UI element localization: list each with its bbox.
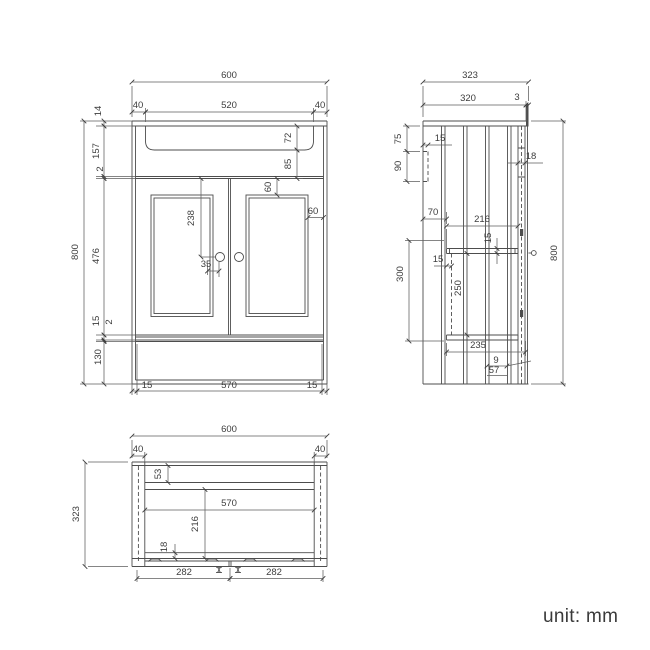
dim-front-top-edge: 14 <box>93 106 104 117</box>
side-view-dimensions: 323 320 3 18 75 90 15 70 216 15 15 300 2… <box>393 70 566 384</box>
dim-front-apron-clearance: 85 <box>283 159 294 170</box>
dim-front-panel-margin-side: 60 <box>308 206 319 217</box>
dim-front-door-gap-bottom: 2 <box>104 319 115 324</box>
dim-plan-overall-depth: 323 <box>71 506 82 522</box>
front-view-dimensions: 600 40 520 40 14 157 2 476 15 2 130 800 … <box>70 70 327 395</box>
front-door-divider <box>229 179 231 336</box>
technical-drawing-page: 600 40 520 40 14 157 2 476 15 2 130 800 … <box>0 0 650 650</box>
dim-side-bracket-height: 90 <box>393 161 404 172</box>
dim-side-rail-thickness: 15 <box>483 233 494 244</box>
dim-side-base-depth: 235 <box>470 340 486 351</box>
front-cabinet-sides <box>132 121 327 384</box>
dim-plan-side-panel-left: 40 <box>133 444 144 455</box>
dim-front-side-panel-right: 40 <box>315 100 326 111</box>
dim-front-overall-width: 600 <box>221 70 237 81</box>
plan-left-knob <box>216 567 222 572</box>
dim-front-door-height: 476 <box>91 248 102 264</box>
dim-side-top-rail-depth: 70 <box>428 207 439 218</box>
side-hinge-lower <box>520 310 523 317</box>
dim-plan-door-width-left: 282 <box>176 567 192 578</box>
dim-side-overall-height: 800 <box>549 245 560 261</box>
dim-front-basin-depth: 72 <box>283 133 294 144</box>
side-door-knob <box>531 251 536 256</box>
dim-plan-door-width-right: 282 <box>266 567 282 578</box>
dim-front-basin-opening: 520 <box>221 100 237 111</box>
dim-plan-front-rail: 18 <box>159 542 170 553</box>
dim-side-interior-depth: 216 <box>474 214 490 225</box>
dim-side-interior-height: 300 <box>395 266 406 282</box>
plan-right-knob <box>235 567 241 572</box>
dim-front-overall-height: 800 <box>70 244 81 260</box>
left-door-panel-outer <box>151 195 213 317</box>
dim-front-panel-margin-top: 60 <box>263 182 274 193</box>
dim-side-runner-thickness: 15 <box>433 254 444 265</box>
unit-label: unit: mm <box>543 606 618 628</box>
dim-side-bracket-offset: 75 <box>393 134 404 145</box>
dim-side-overall-depth: 323 <box>462 70 478 81</box>
side-top-band <box>423 121 529 126</box>
dim-side-rail-spacing: 250 <box>453 280 464 296</box>
front-view <box>132 121 327 384</box>
dim-front-plinth-height: 130 <box>93 349 104 365</box>
front-top-band <box>132 121 327 126</box>
dim-front-base-inset-right: 15 <box>307 380 318 391</box>
dim-plan-back-rail-depth: 53 <box>153 469 164 480</box>
dim-side-bracket-thickness: 15 <box>435 133 446 144</box>
dim-side-back-panel: 18 <box>526 151 537 162</box>
dim-front-side-panel-left: 40 <box>133 100 144 111</box>
dim-plan-interior-width: 570 <box>221 498 237 509</box>
front-horizontal-rails <box>132 177 327 385</box>
dim-side-plinth-inset: 57 <box>489 365 500 376</box>
right-door-knob <box>235 253 244 262</box>
dim-front-base-inset-left: 15 <box>142 380 153 391</box>
dim-front-handle-drop: 238 <box>186 210 197 226</box>
dim-front-bottom-rail: 15 <box>91 316 102 327</box>
dim-side-top-depth: 320 <box>460 93 476 104</box>
dim-front-handle-offset: 35 <box>201 259 212 270</box>
dim-front-apron-height: 157 <box>91 143 102 159</box>
dim-front-base-width: 570 <box>221 380 237 391</box>
dim-plan-overall-width: 600 <box>221 424 237 435</box>
left-door-panel-inner <box>154 198 210 314</box>
vanity-unit-drawing: 600 40 520 40 14 157 2 476 15 2 130 800 … <box>0 0 650 650</box>
dim-plan-interior-depth: 216 <box>190 516 201 532</box>
dim-plan-side-panel-right: 40 <box>315 444 326 455</box>
side-hinge-upper <box>520 229 523 236</box>
dim-side-back-edge: 3 <box>514 92 519 103</box>
front-extension-lines <box>80 86 327 395</box>
right-door-panel-inner <box>249 198 305 314</box>
right-door-panel-outer <box>246 195 308 317</box>
dim-front-door-gap-top: 2 <box>95 166 106 171</box>
left-door-knob <box>216 253 225 262</box>
